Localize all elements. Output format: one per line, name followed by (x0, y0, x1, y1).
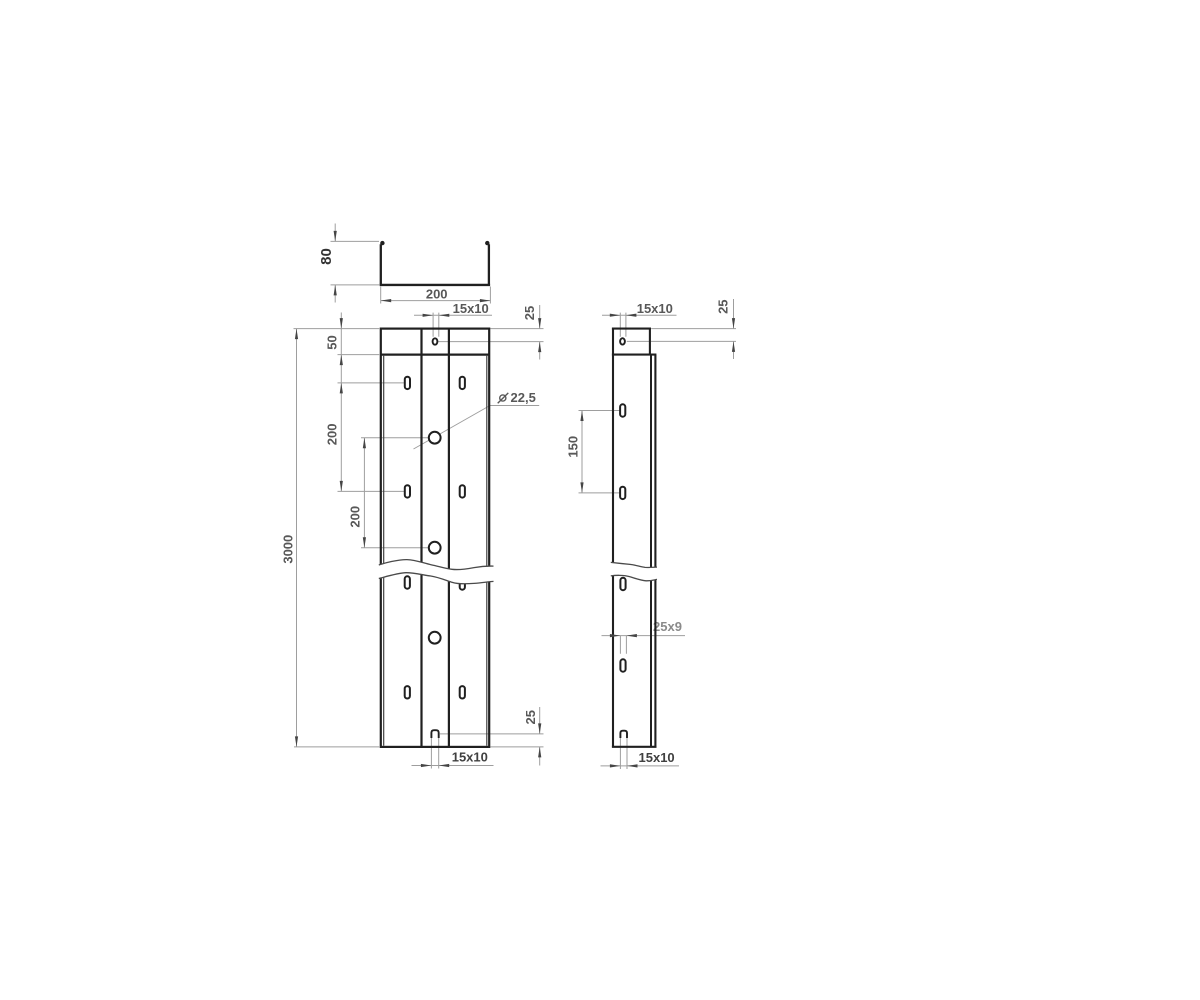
svg-text:25x9: 25x9 (653, 619, 682, 634)
svg-text:3000: 3000 (281, 535, 296, 564)
svg-text:25: 25 (716, 299, 731, 313)
svg-text:150: 150 (566, 436, 581, 458)
svg-text:25: 25 (523, 710, 538, 724)
svg-text:200: 200 (325, 424, 340, 446)
svg-text:50: 50 (325, 335, 340, 349)
svg-text:80: 80 (318, 248, 335, 265)
svg-text:15x10: 15x10 (453, 301, 489, 316)
svg-text:200: 200 (426, 286, 448, 301)
svg-text:200: 200 (348, 506, 363, 528)
svg-text:15x10: 15x10 (452, 749, 488, 764)
svg-text:22,5: 22,5 (511, 390, 536, 405)
svg-text:25: 25 (522, 306, 537, 320)
svg-text:15x10: 15x10 (637, 301, 673, 316)
svg-text:15x10: 15x10 (639, 750, 675, 765)
